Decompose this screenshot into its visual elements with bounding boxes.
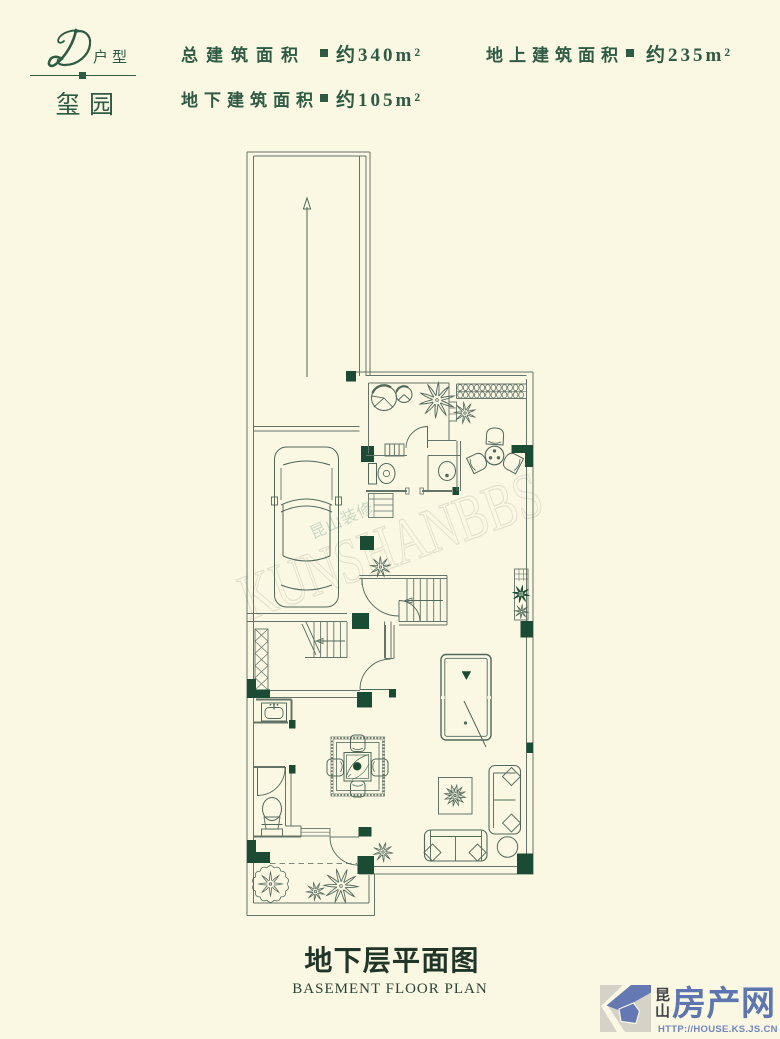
svg-text:BASEMENT FLOOR PLAN: BASEMENT FLOOR PLAN [292, 981, 487, 997]
svg-text:总建筑面积: 总建筑面积 [181, 45, 306, 65]
svg-text:约105m²: 约105m² [336, 88, 423, 111]
svg-text:约235m²: 约235m² [646, 43, 733, 66]
svg-text:HTTP://HOUSE.KS.JS.CN: HTTP://HOUSE.KS.JS.CN [658, 1024, 778, 1035]
svg-text:玺园: 玺园 [56, 91, 123, 119]
svg-text:昆: 昆 [655, 987, 670, 1004]
svg-text:地下层平面图: 地下层平面图 [304, 945, 479, 977]
svg-text:地上建筑面积: 地上建筑面积 [486, 45, 624, 65]
svg-text:户型: 户型 [93, 49, 131, 66]
svg-text:房产网: 房产网 [672, 985, 776, 1023]
svg-text:地下建筑面积: 地下建筑面积 [181, 90, 319, 110]
svg-text:约340m²: 约340m² [336, 43, 423, 66]
svg-text:山: 山 [655, 1003, 670, 1020]
